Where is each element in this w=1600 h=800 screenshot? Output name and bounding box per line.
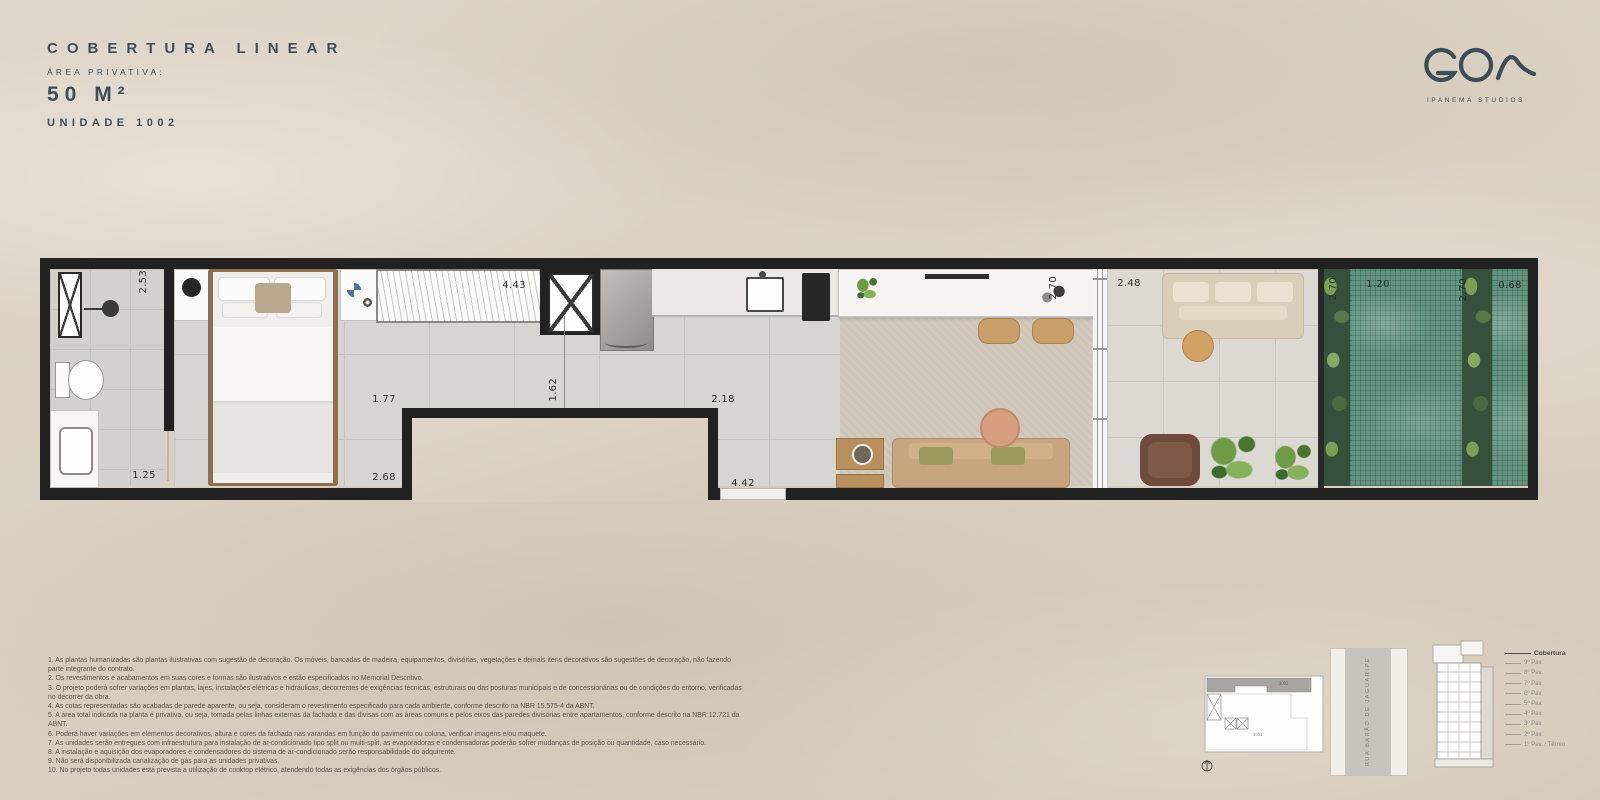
duvet <box>213 327 333 403</box>
island-tray-icon <box>925 274 989 279</box>
page-title: COBERTURA LINEAR <box>47 40 346 57</box>
floor-label: 9º Pav. <box>1505 658 1595 668</box>
outdoor-cushion <box>1173 282 1209 302</box>
shower-glass-partition <box>50 344 164 347</box>
bathroom-door-leaf <box>167 431 169 481</box>
floor-label: 1º Pav. / Térreo <box>1505 740 1595 750</box>
disclaimer-line: 5. A área total indicada na planta é pri… <box>48 711 748 729</box>
goa-logo-icon <box>1408 42 1544 90</box>
outdoor-sofa <box>1162 273 1304 339</box>
sidewalk-band <box>1330 648 1346 776</box>
dim-pool2-width: 0.68 <box>1493 280 1527 291</box>
bathroom-vanity <box>50 410 99 488</box>
building-elevation: Cobertura9º Pav.8º Pav.7º Pav.6º Pav.5º … <box>1425 628 1600 778</box>
bar-stool <box>1032 318 1074 344</box>
dim-bathroom-depth: 2.53 <box>138 270 149 293</box>
floor-label: 6º Pav. <box>1505 689 1595 699</box>
toilet-bowl-icon <box>68 360 104 400</box>
wall-bottom-left <box>40 488 412 500</box>
floor-label: 4º Pav. <box>1505 709 1595 719</box>
floor-labels: Cobertura9º Pav.8º Pav.7º Pav.6º Pav.5º … <box>1505 648 1595 750</box>
bed-throw <box>255 283 291 313</box>
floor-label: 2º Pav. <box>1505 730 1595 740</box>
footprint-notch <box>412 418 708 502</box>
nightstand-right <box>340 269 378 321</box>
sidewalk-band <box>1390 648 1408 776</box>
outdoor-cushion <box>1215 282 1251 302</box>
sofa-cushion <box>919 447 953 465</box>
dim-kitchen-width: 2.18 <box>705 394 741 405</box>
pool-main <box>1350 269 1462 486</box>
area-value: 50 M² <box>47 83 346 107</box>
shaft-xbox-icon <box>548 273 594 333</box>
decor-flower-icon <box>363 298 372 307</box>
area-label: ÁREA PRIVATIVA: <box>47 67 346 77</box>
floor-label: 7º Pav. <box>1505 679 1595 689</box>
ottoman-icon <box>1182 330 1214 362</box>
bathroom-window-icon <box>58 272 82 338</box>
brand-logo: IPANEMA STUDIOS <box>1408 42 1544 104</box>
dim-living-width: 4.42 <box>725 478 761 489</box>
disclaimer-line: 8. A instalação e aquisição dos evaporad… <box>48 748 748 757</box>
terrace-plant-icon <box>1268 438 1318 486</box>
wall-pool-edge <box>1318 269 1324 488</box>
street-band: RUA BARÃO DE JAGUARIPE <box>1346 648 1390 776</box>
floor-label: 8º Pav. <box>1505 668 1595 678</box>
wall-notch-left <box>402 408 412 500</box>
wall-bottom-right <box>708 488 1538 500</box>
unit-label: UNIDADE 1002 <box>47 117 346 129</box>
dim-bedroom-width: 2.68 <box>366 472 402 483</box>
vase-icon <box>852 444 873 465</box>
disclaimer-line: 3. O projeto poderá sofrer variações em … <box>48 684 748 702</box>
terrace-sliding-door <box>1093 269 1107 488</box>
dim-hall-width: 1.62 <box>548 378 559 401</box>
outdoor-cushion <box>1257 282 1293 302</box>
keyplan-unit-1001-label: 1001 <box>1253 732 1263 737</box>
building-sketch-icon <box>1425 633 1505 778</box>
decor-pinwheel-icon <box>347 283 361 297</box>
bed <box>208 269 338 486</box>
wardrobe <box>376 269 544 323</box>
outdoor-seat <box>1179 306 1287 320</box>
dim-pool-width: 1.20 <box>1361 279 1395 290</box>
disclaimer-line: 4. As cotas representadas são acabadas d… <box>48 702 748 711</box>
faucet-icon <box>759 271 766 278</box>
wall-top <box>40 258 1538 269</box>
terrace-plant-icon <box>1202 428 1264 486</box>
keyplan-drawing: 1002 1001 <box>1195 662 1335 780</box>
sofa <box>892 438 1070 488</box>
wall-notch-right <box>708 408 718 500</box>
dim-terrace-depth: 2.70 <box>1328 277 1339 300</box>
side-table <box>836 474 884 488</box>
dim-bedroom: 1.77 <box>366 394 402 405</box>
fridge-cabinet <box>600 269 654 351</box>
keyplan: 1002 1001 <box>1195 662 1335 780</box>
cooktop-icon <box>802 273 830 321</box>
sofa-cushion <box>991 447 1025 465</box>
armchair <box>1140 434 1200 486</box>
floor-label: 3º Pav. <box>1505 719 1595 729</box>
dim-bathroom-width: 1.25 <box>126 470 162 481</box>
dim-wardrobe-width: 4.43 <box>496 280 532 291</box>
disclaimer-line: 9. Não será disponibilizada canalização … <box>48 757 748 766</box>
dimension-line <box>564 316 565 408</box>
sink-basin-icon <box>59 427 93 475</box>
cabinet-handle-icon <box>605 338 647 348</box>
round-table <box>980 408 1020 448</box>
street-name-label: RUA BARÃO DE JAGUARIPE <box>1365 657 1371 766</box>
disclaimer-line: 2. Os revestimentos e acabamentos em sua… <box>48 674 748 683</box>
wall-right <box>1528 258 1538 500</box>
kitchen-sink-icon <box>746 277 784 312</box>
disclaimer-line: 1. As plantas humanizadas são plantas il… <box>48 656 748 674</box>
armchair-cushion <box>1148 442 1192 478</box>
floorplan: 2.53 1.25 4.43 1.77 2.68 1.62 2.18 4.42 … <box>40 256 1538 502</box>
header-block: COBERTURA LINEAR ÁREA PRIVATIVA: 50 M² U… <box>47 40 346 129</box>
table-lamp-icon <box>182 278 201 297</box>
brand-subtitle: IPANEMA STUDIOS <box>1408 97 1544 104</box>
dim-island-length: 2.70 <box>1048 276 1059 299</box>
island-plant-icon <box>853 274 881 302</box>
disclaimer-block: 1. As plantas humanizadas são plantas il… <box>48 656 748 776</box>
wall-notch-top <box>402 408 718 418</box>
keyplan-unit-1002-label: 1002 <box>1279 681 1289 686</box>
wall-bathroom <box>164 269 174 431</box>
floor-label: Cobertura <box>1505 648 1595 658</box>
dim-pool-depth: 2.70 <box>1458 278 1469 301</box>
entry-door <box>720 488 786 500</box>
pool-planter-left <box>1322 269 1350 486</box>
bed-blanket <box>213 403 333 473</box>
pool-planter-middle <box>1462 269 1492 486</box>
dim-terrace-width: 2.48 <box>1111 278 1147 289</box>
pool-secondary <box>1492 269 1528 486</box>
disclaimer-line: 6. Poderá haver variações em elementos d… <box>48 730 748 739</box>
wall-left <box>40 258 50 500</box>
disclaimer-line: 10. No projeto todas unidades está previ… <box>48 766 748 775</box>
bar-stool <box>978 318 1020 344</box>
floor-label: 5º Pav. <box>1505 699 1595 709</box>
shower-head-icon <box>102 300 119 317</box>
disclaimer-line: 7. As unidades serão entregues com infra… <box>48 739 748 748</box>
